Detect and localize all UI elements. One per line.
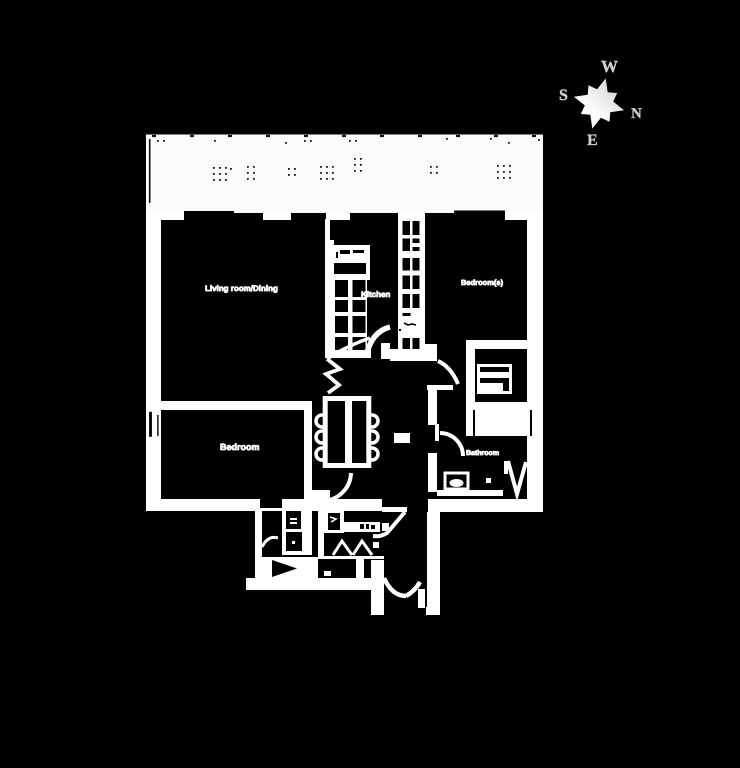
svg-text:Kitchen: Kitchen bbox=[361, 290, 390, 299]
svg-text:W: W bbox=[601, 57, 618, 76]
svg-text:Bathroom: Bathroom bbox=[466, 449, 499, 457]
svg-text:E: E bbox=[587, 132, 598, 149]
svg-text:Living room/Dining: Living room/Dining bbox=[205, 284, 278, 293]
svg-text:Bedroom: Bedroom bbox=[220, 442, 260, 452]
svg-text:S: S bbox=[559, 87, 568, 104]
svg-text:Bedroom(s): Bedroom(s) bbox=[461, 278, 504, 287]
svg-text:N: N bbox=[631, 106, 642, 122]
